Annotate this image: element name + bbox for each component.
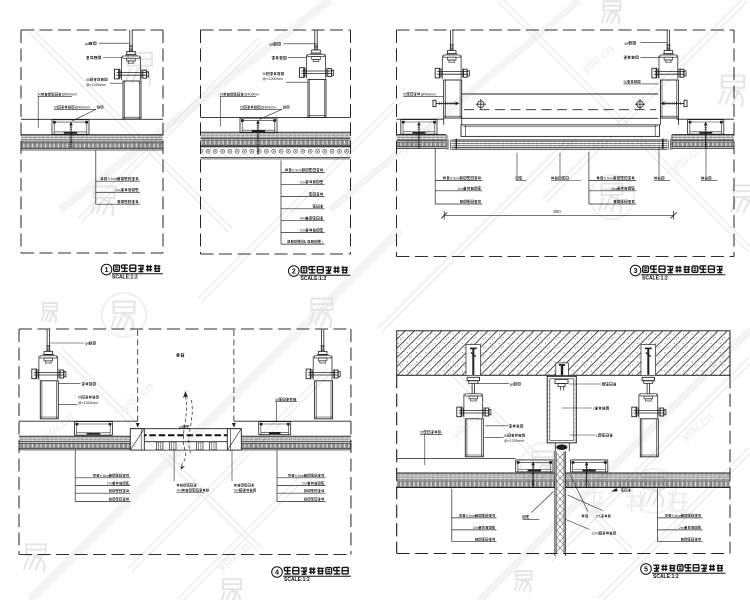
svg-text:@<1200mm: @<1200mm: [86, 83, 106, 87]
svg-text:50: 50: [504, 434, 508, 438]
svg-text:@400mm: @400mm: [62, 93, 77, 97]
svg-text:@400mm: @400mm: [261, 106, 276, 110]
svg-text:L: L: [596, 434, 598, 438]
svg-text:9.5mm: 9.5mm: [604, 176, 615, 180]
svg-text:SCALE:1:2: SCALE:1:2: [284, 577, 310, 583]
svg-text:50: 50: [420, 430, 424, 434]
svg-text:12mm: 12mm: [591, 532, 601, 536]
svg-text:50: 50: [86, 78, 90, 82]
svg-text:50: 50: [38, 93, 42, 97]
svg-text:50: 50: [624, 80, 628, 84]
svg-text:50: 50: [275, 398, 279, 402]
svg-text:50: 50: [54, 106, 58, 110]
svg-text:4: 4: [275, 568, 279, 577]
svg-text:50: 50: [263, 72, 267, 76]
svg-text:1: 1: [105, 265, 109, 274]
svg-text:SCALE:1:2: SCALE:1:2: [112, 275, 138, 281]
svg-text:50: 50: [403, 92, 407, 96]
svg-text:9mm: 9mm: [234, 489, 242, 493]
svg-text:800: 800: [553, 209, 561, 214]
svg-text:2: 2: [292, 267, 296, 276]
svg-text:9.5mm: 9.5mm: [295, 474, 306, 478]
svg-text:@400mm: @400mm: [421, 92, 436, 96]
svg-text:φ8: φ8: [85, 342, 90, 346]
svg-text:9.5mm: 9.5mm: [292, 168, 303, 172]
svg-text:SCALE:1:2: SCALE:1:2: [653, 574, 679, 580]
svg-text:50: 50: [78, 396, 82, 400]
svg-text:9.5mm: 9.5mm: [466, 514, 477, 518]
svg-text:@<1200mm: @<1200mm: [504, 439, 524, 443]
svg-text:5: 5: [644, 565, 648, 574]
svg-text:SCALE:1:2: SCALE:1:2: [642, 276, 668, 282]
svg-text:9.5mm: 9.5mm: [108, 177, 119, 181]
svg-text:@400mm: @400mm: [244, 93, 259, 97]
svg-text:3: 3: [634, 266, 638, 275]
svg-text:@<1200mm: @<1200mm: [78, 401, 98, 405]
svg-text:SCALE:1:2: SCALE:1:2: [301, 276, 327, 282]
svg-text:3*6: 3*6: [596, 514, 601, 518]
svg-text:φ8: φ8: [179, 425, 183, 429]
svg-text:9.5mm: 9.5mm: [100, 474, 111, 478]
svg-text:9.5mm: 9.5mm: [672, 514, 683, 518]
svg-text:): ): [322, 240, 323, 244]
svg-text:9.5mm: 9.5mm: [450, 176, 461, 180]
svg-text:φ8: φ8: [510, 382, 515, 386]
svg-text:50: 50: [240, 106, 244, 110]
svg-text:@400mm: @400mm: [75, 106, 90, 110]
svg-text:@<1200mm: @<1200mm: [263, 77, 283, 81]
svg-text:50: 50: [220, 93, 224, 97]
